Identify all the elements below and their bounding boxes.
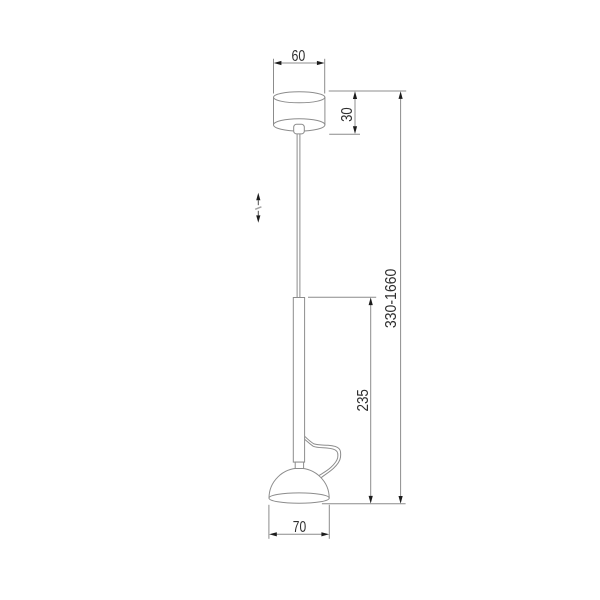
svg-text:235: 235	[355, 389, 372, 412]
svg-text:70: 70	[293, 519, 307, 536]
svg-text:30: 30	[339, 107, 356, 122]
svg-text:60: 60	[292, 48, 306, 65]
svg-text:330-1660: 330-1660	[383, 268, 400, 328]
